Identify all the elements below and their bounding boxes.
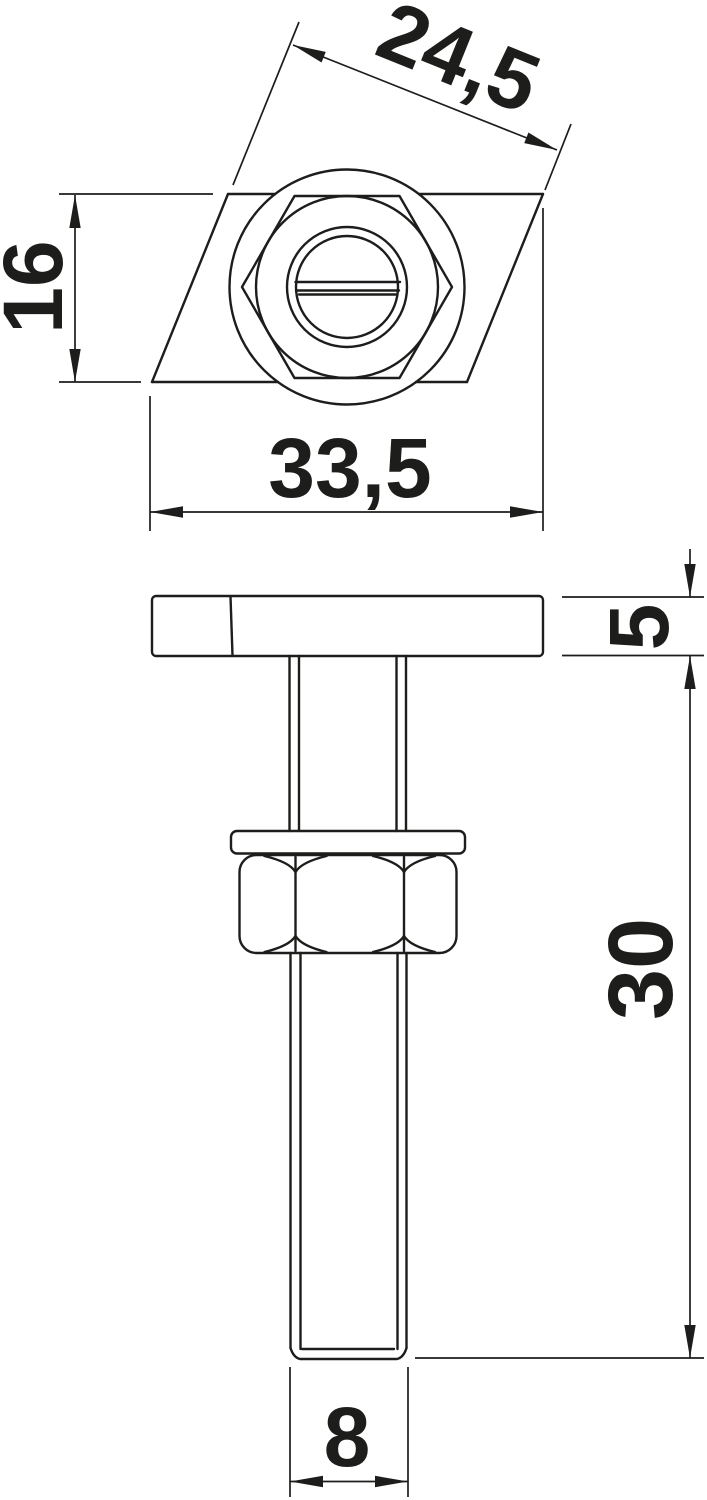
extension-line bbox=[545, 124, 571, 190]
side-view: 5 30 8 bbox=[152, 549, 704, 1497]
t-head-side bbox=[152, 596, 543, 656]
t-head-bolt-drawing: 24,5 16 33,5 bbox=[0, 0, 707, 1500]
extension-line bbox=[233, 22, 299, 185]
flange-washer bbox=[231, 831, 465, 854]
hex-nut-top-outline bbox=[242, 196, 452, 378]
head-parallelogram-outline bbox=[152, 194, 543, 382]
nut-chamfer-arc bbox=[296, 856, 327, 872]
screw-collar-circle bbox=[287, 227, 407, 347]
threaded-rod bbox=[291, 953, 407, 1359]
dimension-thread-diameter: 8 bbox=[290, 1367, 408, 1497]
top-view: 24,5 16 33,5 bbox=[0, 0, 571, 531]
technical-drawing-canvas: 24,5 16 33,5 bbox=[0, 0, 707, 1500]
dimension-head-length: 33,5 bbox=[150, 208, 543, 531]
dimension-label: 30 bbox=[590, 918, 692, 1020]
dimension-shaft-length: 30 bbox=[415, 656, 704, 1358]
screw-top-circle bbox=[296, 236, 398, 338]
nut-chamfer-arc bbox=[404, 936, 435, 952]
dimension-head-height: 16 bbox=[0, 194, 213, 382]
hex-chamfer-circle bbox=[256, 196, 438, 378]
dimension-label: 5 bbox=[592, 604, 686, 651]
nut-chamfer-arc bbox=[296, 936, 327, 952]
parallelogram-right-edge bbox=[467, 194, 543, 382]
dimension-head-thickness: 5 bbox=[562, 549, 704, 656]
shank-lines bbox=[290, 656, 407, 831]
flange-outer-circle bbox=[230, 170, 465, 405]
parallelogram-left-edge bbox=[152, 194, 228, 382]
dimension-label: 33,5 bbox=[268, 421, 432, 515]
screwdriver-slot bbox=[296, 282, 401, 295]
nut-chamfer-arc bbox=[404, 856, 435, 872]
nut-chamfer-arc bbox=[265, 856, 296, 872]
dimension-label: 16 bbox=[0, 240, 80, 333]
dimension-head-diagonal: 24,5 bbox=[233, 0, 571, 190]
dimension-label: 8 bbox=[324, 1390, 371, 1484]
nut-chamfer-arc bbox=[265, 936, 296, 952]
nut-outline bbox=[240, 855, 457, 953]
head-edge-line bbox=[231, 597, 233, 656]
head-rect bbox=[152, 596, 543, 656]
nut-chamfer-arc bbox=[373, 936, 404, 952]
nut-chamfer-arc bbox=[373, 856, 404, 872]
hex-nut-side bbox=[240, 855, 457, 953]
